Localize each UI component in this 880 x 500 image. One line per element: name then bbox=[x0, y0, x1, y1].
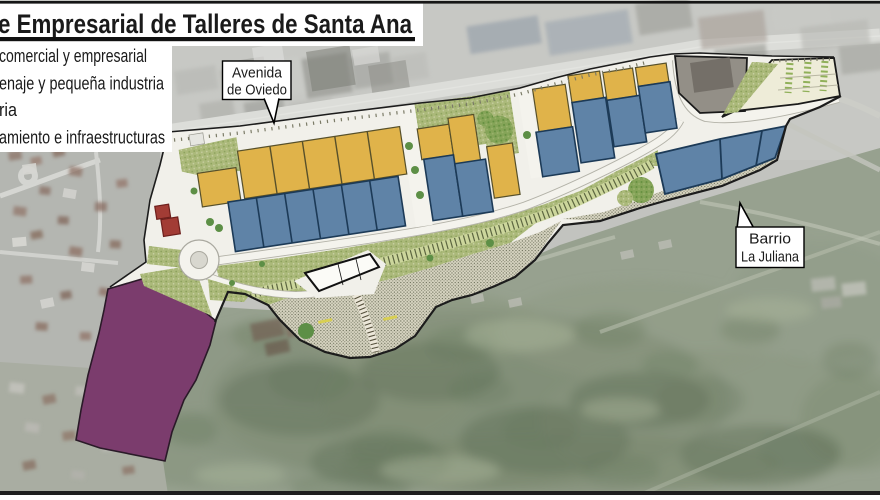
svg-text:comercial y empresarial: comercial y empresarial bbox=[0, 46, 147, 66]
svg-text:de Oviedo: de Oviedo bbox=[227, 82, 287, 99]
svg-text:enaje y pequeña industria: enaje y pequeña industria bbox=[0, 74, 165, 94]
svg-text:La Juliana: La Juliana bbox=[741, 249, 800, 266]
svg-text:amiento e infraestructuras: amiento e infraestructuras bbox=[0, 128, 165, 148]
svg-text:ria: ria bbox=[0, 100, 18, 120]
svg-text:Avenida: Avenida bbox=[232, 65, 283, 82]
svg-text:Barrio: Barrio bbox=[749, 231, 791, 248]
svg-text:e Empresarial de Talleres de S: e Empresarial de Talleres de Santa Ana bbox=[0, 9, 413, 39]
